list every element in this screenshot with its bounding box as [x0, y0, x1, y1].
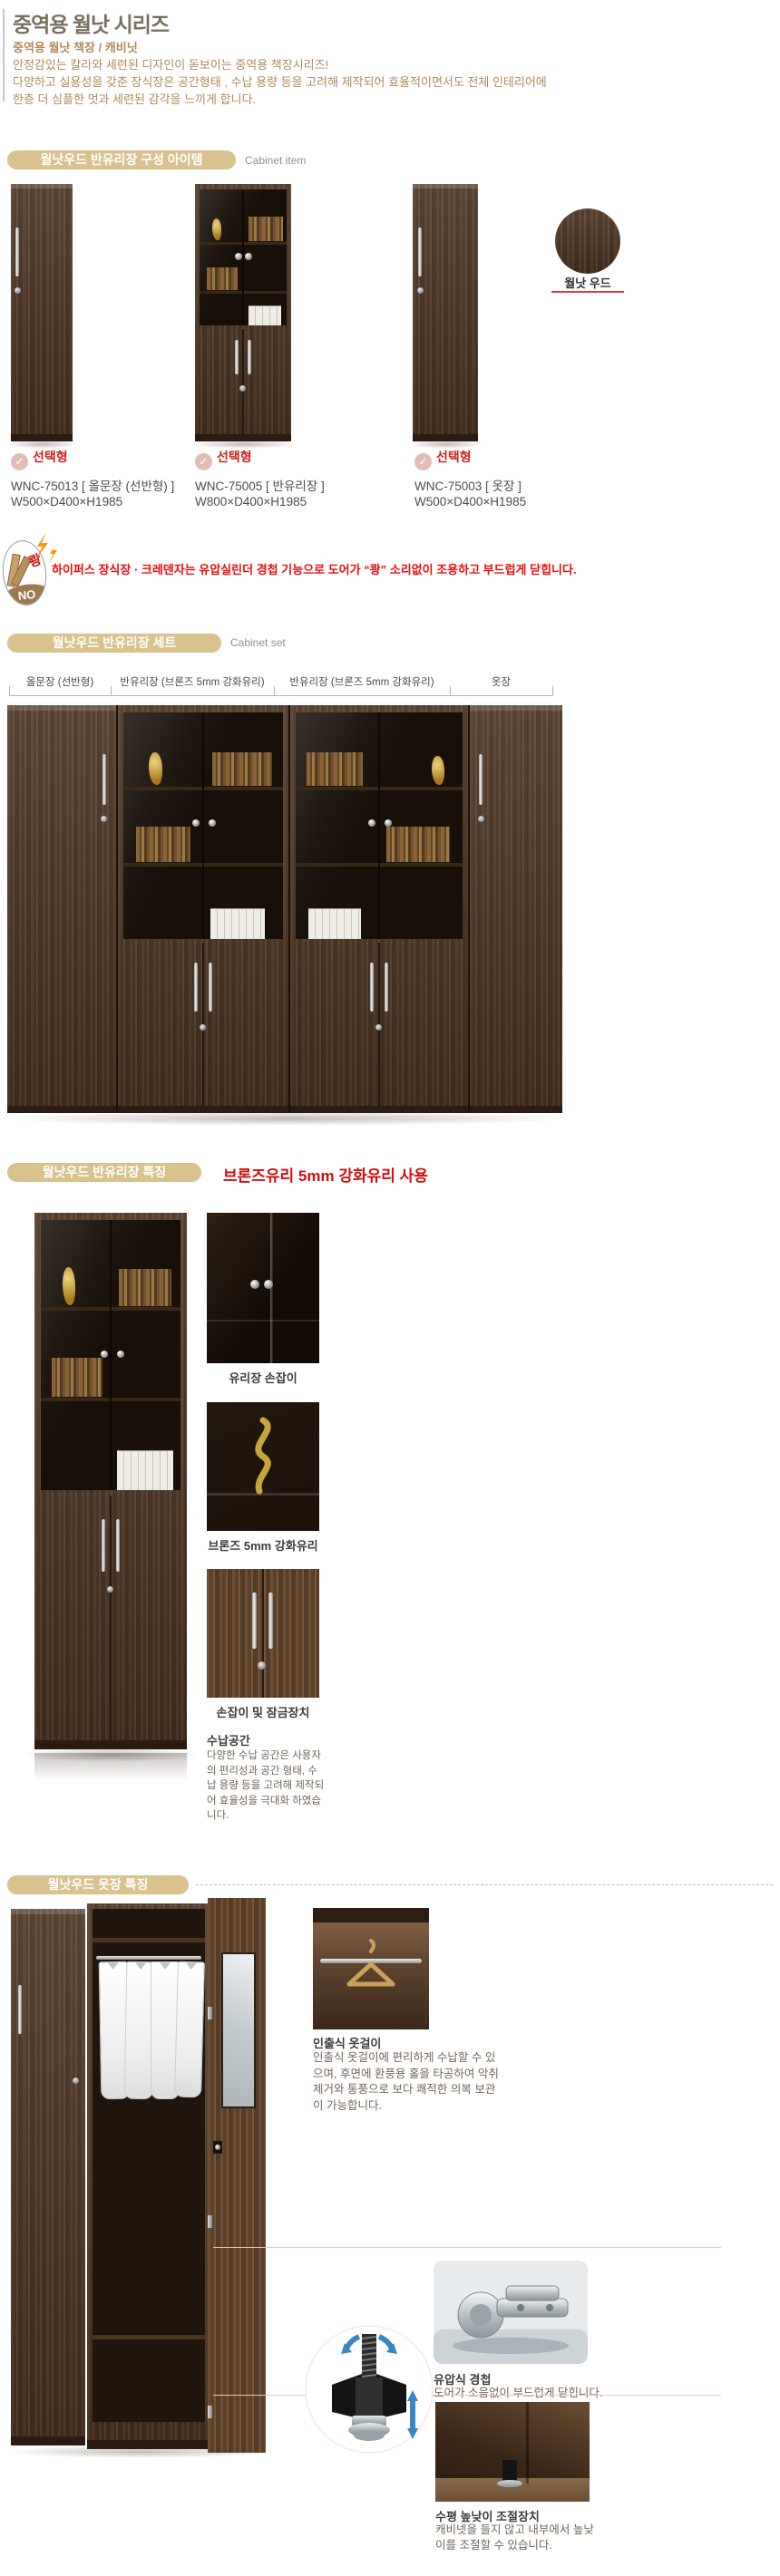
set-table-tick — [450, 686, 451, 696]
set-unit-half-glass — [118, 705, 288, 1113]
product-label: ✓선택형 WNC-75005 [ 반유리장 ] W800×D400×H1985 — [195, 448, 325, 509]
set-table-rule — [9, 695, 553, 696]
section-pill-glass-feature: 월낫우드 반유리장 특징 — [7, 1163, 201, 1182]
detail-photo-bronze-glass — [207, 1402, 319, 1531]
page-title: 중역용 월낫 시리즈 — [13, 7, 169, 38]
lock-knob — [215, 2145, 220, 2150]
hanger-icon — [342, 1939, 400, 1997]
door-hinge — [208, 2215, 212, 2228]
cabinet-handle — [370, 963, 374, 1012]
glass-door-knob — [101, 1351, 108, 1358]
glass-door-knob — [368, 819, 375, 827]
set-column-header: 옷장 — [450, 674, 552, 689]
books — [136, 827, 190, 863]
glass-section — [41, 1220, 180, 1490]
storage-text: 다양한 수납 공간은 사용자의 편리성과 공간 형태, 수납 용량 등을 고려해… — [207, 1748, 325, 1824]
product-size: W800×D400×H1985 — [195, 494, 325, 509]
glass-reflection — [207, 1320, 319, 1322]
section-side-cabinet-set: Cabinet set — [230, 636, 286, 649]
cabinet-top-edge — [470, 705, 562, 711]
cabinet-handle — [209, 963, 212, 1012]
decor-object — [432, 756, 444, 785]
hanger-caption: 인출식 옷걸이 — [313, 2034, 381, 2051]
brass-handle-icon — [238, 1415, 288, 1498]
cabinet-handle — [479, 754, 483, 805]
glass-door-knob — [264, 1280, 273, 1289]
set-unit-half-glass — [290, 705, 468, 1113]
glass-door-knob — [385, 819, 392, 827]
wardrobe-closed-image — [11, 1909, 85, 2445]
cabinet-handle — [235, 340, 239, 374]
foot-base — [497, 2480, 522, 2487]
books — [249, 217, 283, 242]
left-accent-line — [3, 9, 5, 102]
glass-door-split — [202, 712, 204, 939]
hanger-rail — [96, 1956, 201, 1960]
glass-section — [200, 189, 287, 325]
glass-section — [123, 712, 283, 939]
product-model: WNC-75005 [ 반유리장 ] — [195, 479, 325, 494]
cabinet-top-edge — [7, 705, 116, 711]
detail-photo-handle-lock — [207, 1569, 319, 1698]
wardrobe-interior — [93, 1909, 205, 2422]
glass-door-knob — [235, 253, 242, 260]
binders — [308, 908, 361, 939]
section-side-cabinet-item: Cabinet item — [245, 154, 306, 167]
product-size: W500×D400×H1985 — [414, 494, 526, 509]
notice-text: 하이퍼스 장식장 · 크레덴자는 유압실린더 경첩 기능으로 도어가 “쾅” 소… — [52, 560, 577, 577]
books — [212, 752, 272, 787]
product-label: ✓선택형 WNC-75013 [ 올문장 (선반형) ] W500×D400×H… — [11, 448, 174, 509]
glass-cabinet — [34, 1213, 187, 1749]
check-icon: ✓ — [195, 453, 212, 470]
cabinet-handle — [18, 1985, 22, 2034]
cabinet-handle — [248, 340, 251, 374]
glass-door-knob — [209, 819, 216, 827]
option-badge: ✓선택형 — [11, 448, 174, 470]
hanger-text: 인출식 옷걸이에 편리하게 수납할 수 있으며, 후면에 환풍용 홀을 타공하여… — [313, 2050, 503, 2114]
glass-door-knob — [117, 1351, 124, 1358]
glass-section — [296, 712, 463, 939]
glass-door-split — [378, 712, 380, 939]
set-column-header: 반유리장 (브론즈 5mm 강화유리) — [111, 674, 274, 689]
door-split — [262, 1569, 264, 1698]
set-column-header: 올문장 (선반형) — [9, 674, 111, 689]
cabinet-handle — [102, 754, 106, 805]
cabinet-handle — [102, 1519, 105, 1572]
cabinet-top-edge — [11, 1909, 85, 1914]
section-pill-wardrobe-feature: 월낫우드 옷장 특징 — [7, 1875, 189, 1894]
detail-photo-hydraulic-hinge — [434, 2261, 588, 2364]
glass-door-split — [110, 1220, 112, 1490]
glass-door-knob — [192, 819, 200, 827]
set-unit-wardrobe — [470, 705, 562, 1113]
product-image-full-door-cabinet — [11, 184, 73, 441]
books — [307, 752, 363, 787]
set-table-tick — [552, 686, 553, 696]
cabinet-keyhole — [200, 1024, 206, 1031]
door-hinge — [208, 2007, 212, 2019]
books — [52, 1358, 102, 1398]
cabinet-keyhole — [101, 816, 107, 822]
floor-reflection — [34, 1753, 187, 1780]
cabinet-keyhole — [239, 385, 246, 392]
wood-swatch-label: 월낫 우드 — [544, 274, 631, 291]
door-split — [242, 329, 244, 434]
hinge-text: 도어가 소음없이 부드럽게 닫힙니다. — [434, 2386, 633, 2401]
cabinet-keyhole — [417, 287, 424, 294]
wood-swatch — [555, 208, 620, 274]
glass-door-split — [242, 189, 244, 325]
binders — [117, 1450, 173, 1490]
top-shelf — [93, 1938, 205, 1942]
books — [119, 1269, 171, 1307]
detail-photo-glass-handle — [207, 1213, 319, 1363]
product-label: ✓선택형 WNC-75003 [ 옷장 ] W500×D400×H1985 — [414, 448, 526, 509]
binders — [249, 305, 281, 325]
storage-title: 수납공간 — [207, 1731, 250, 1748]
cabinet-top-edge — [413, 184, 478, 189]
detail-caption: 손잡이 및 잠금장치 — [207, 1703, 319, 1720]
bottom-shelf — [93, 2335, 205, 2339]
shirt — [174, 1961, 205, 2098]
leveling-foot-diagram — [305, 2325, 434, 2455]
door-mirror — [221, 1952, 256, 2108]
cabinet-keyhole — [15, 287, 21, 294]
cabinet-keyhole — [478, 816, 484, 822]
cabinet-base — [11, 2436, 85, 2445]
wardrobe-open-door — [208, 1898, 266, 2453]
section-pill-cabinet-item: 월낫우드 반유리장 구성 아이템 — [7, 150, 236, 169]
decor-object — [212, 218, 221, 240]
cabinet-keyhole — [107, 1586, 113, 1593]
cabinet-keyhole — [258, 1661, 266, 1670]
option-badge-label: 선택형 — [33, 450, 68, 464]
cabinet-keyhole — [73, 2077, 79, 2084]
cabinet-handle — [116, 1519, 120, 1572]
description-line-3: 한층 더 심플한 멋과 세련된 감각을 느끼게 합니다. — [13, 90, 256, 107]
set-table-tick — [111, 686, 112, 696]
door-split — [110, 1496, 112, 1742]
books — [386, 827, 450, 863]
glass-feature-headline: 브론즈유리 5mm 강화유리 사용 — [223, 1163, 428, 1186]
product-model: WNC-75013 [ 올문장 (선반형) ] — [11, 479, 174, 494]
set-table-tick — [274, 686, 275, 696]
product-size: W500×D400×H1985 — [11, 494, 174, 509]
glass-door-knob — [245, 253, 252, 260]
books — [207, 267, 238, 291]
feature-divider — [213, 2395, 721, 2396]
glass-cabinet-photo — [23, 1206, 200, 1786]
wardrobe-open-image — [87, 1903, 210, 2449]
product-model: WNC-75003 [ 옷장 ] — [414, 479, 526, 494]
option-badge: ✓선택형 — [414, 448, 526, 470]
panel-seam — [526, 2402, 529, 2484]
cabinet-handle — [15, 228, 19, 276]
option-badge: ✓선택형 — [195, 448, 325, 470]
detail-photo-pullout-hanger — [313, 1908, 429, 2029]
adjustable-foot — [502, 2460, 517, 2482]
cabinet-handle — [252, 1593, 257, 1649]
cabinet-top-edge — [11, 184, 73, 189]
product-image-wardrobe — [413, 184, 478, 441]
feature-divider — [213, 2247, 721, 2248]
set-column-header: 반유리장 (브론즈 5mm 강화유리) — [274, 674, 450, 689]
glass-door-knob — [250, 1280, 259, 1289]
section-dashed-rule — [196, 1884, 773, 1885]
no-slam-icon: NO 쾅 — [3, 537, 54, 606]
set-unit-full-door — [7, 705, 116, 1113]
detail-photo-cabinet-bottom — [435, 2402, 590, 2502]
option-badge-label: 선택형 — [217, 450, 252, 464]
cabinet-keyhole — [375, 1024, 382, 1031]
check-icon: ✓ — [414, 453, 432, 470]
wardrobe-floor-shadow — [7, 2445, 270, 2458]
detail-caption: 유리장 손잡이 — [207, 1369, 319, 1386]
cabinet-handle — [418, 228, 422, 276]
binders — [210, 908, 265, 939]
description-line-2: 다양하고 실용성을 갖춘 장식장은 공간형태 , 수납 용량 등을 고려해 제작… — [13, 73, 547, 90]
cabinet-handle — [268, 1593, 273, 1649]
check-icon: ✓ — [11, 453, 28, 470]
shelf-underside — [313, 1908, 429, 1922]
page-subtitle: 중역용 월낫 책장 / 캐비닛 — [13, 38, 138, 55]
description-line-1: 안정감있는 칼라와 세련된 디자인이 돋보이는 중역용 책장시리즈! — [13, 55, 328, 73]
cabinet-handle — [194, 963, 198, 1012]
detail-caption: 브론즈 5mm 강화유리 — [207, 1536, 319, 1554]
option-badge-label: 선택형 — [436, 450, 472, 464]
decor-object — [63, 1267, 75, 1305]
set-table-tick — [9, 686, 10, 696]
set-floor-shadow — [2, 1111, 568, 1126]
cabinet-set-image — [7, 705, 562, 1131]
leveler-text: 캐비넷을 들지 않고 내부에서 높낮이를 조절할 수 있습니다. — [435, 2523, 600, 2553]
product-detail-page: 중역용 월낫 시리즈 중역용 월낫 책장 / 캐비닛 안정감있는 칼라와 세련된… — [0, 0, 780, 2576]
door-lock — [213, 2141, 222, 2154]
door-hinge — [208, 2406, 212, 2418]
section-pill-cabinet-set: 월낫우드 반유리장 세트 — [7, 634, 221, 653]
decor-object — [149, 752, 162, 785]
cabinet-handle — [385, 963, 388, 1012]
product-image-half-glass-cabinet — [195, 184, 291, 441]
wood-swatch-underline — [551, 291, 624, 293]
